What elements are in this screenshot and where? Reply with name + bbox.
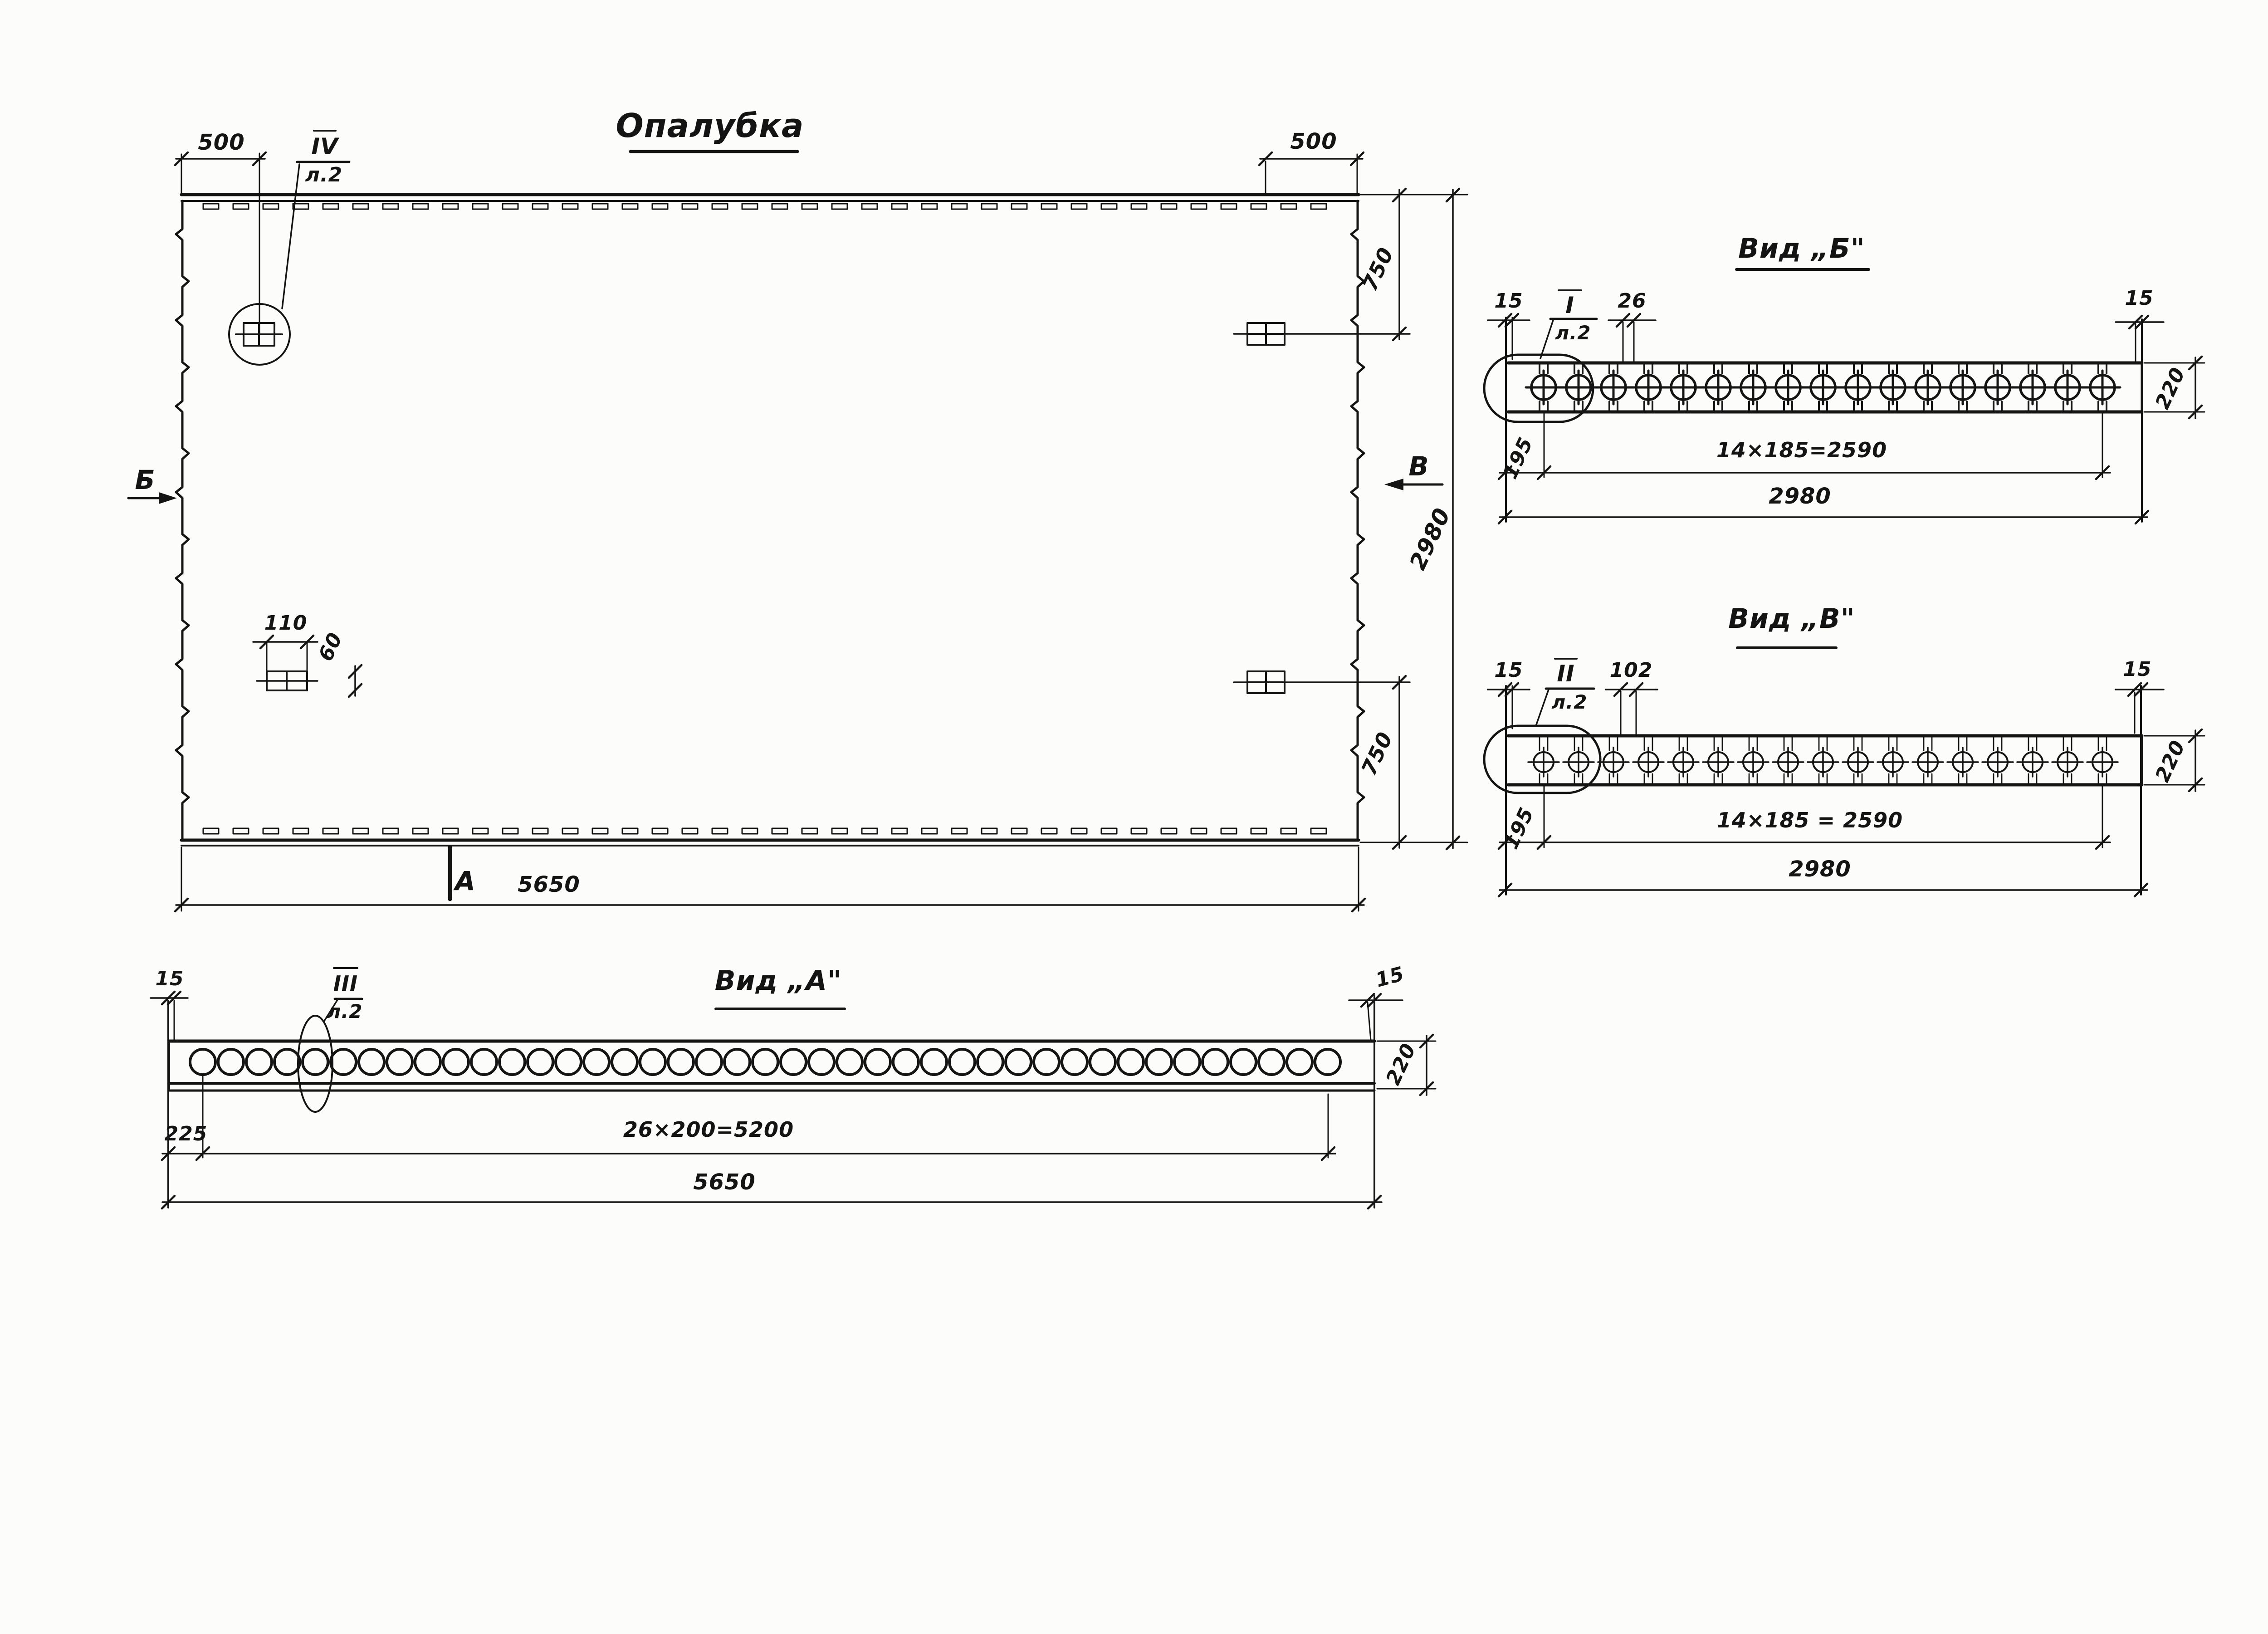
bolt-icon <box>1738 738 1769 783</box>
hole-icon <box>246 1049 272 1075</box>
rib-dash <box>1251 204 1266 209</box>
plan-bottom-rib-dashes <box>203 828 1326 834</box>
dim-label: 750 <box>1356 728 1398 779</box>
bolt-icon <box>1666 365 1701 410</box>
bolt-icon <box>1703 738 1734 783</box>
bolt-icon <box>1805 365 1841 410</box>
hole-icon <box>556 1049 581 1075</box>
rib-dash <box>533 204 548 209</box>
hole-icon <box>303 1049 328 1075</box>
hole-icon <box>1259 1049 1284 1075</box>
dim-label-pitch: 14×185=2590 <box>1716 438 1887 462</box>
rib-dash <box>772 204 787 209</box>
callout-leader <box>1540 320 1553 358</box>
bolt-icon <box>1875 365 1911 410</box>
rib-dash <box>802 828 817 834</box>
dim-label: 500 <box>198 130 244 155</box>
callout-sheet: л.2 <box>327 1000 363 1022</box>
view-a-dims-bottom: 225 26×200=5200 5650 <box>162 1076 1382 1208</box>
bolt-icon <box>1668 738 1699 783</box>
bolt-icon <box>1843 738 1873 783</box>
dim-label-height: 60 <box>314 629 347 665</box>
callout-sheet: л.2 <box>1552 691 1588 713</box>
view-b-strip <box>1484 355 2142 422</box>
rib-dash <box>952 828 967 834</box>
hole-icon <box>387 1049 412 1075</box>
view-v-dim-15-left: 15 <box>1488 659 1530 895</box>
plan-clamp-upper <box>1234 323 1410 345</box>
rib-dash <box>922 828 937 834</box>
hole-icon <box>753 1049 778 1075</box>
hole-icon <box>1006 1049 1031 1075</box>
rib-dash <box>1041 828 1057 834</box>
rib-dash <box>562 204 578 209</box>
rib-dash <box>982 828 997 834</box>
bolt-icon <box>1770 365 1806 410</box>
dim-label: 102 <box>1610 659 1653 682</box>
hole-icon <box>190 1049 215 1075</box>
callout-leader <box>282 164 299 308</box>
marker-arrow-icon <box>1384 479 1403 490</box>
bolt-icon <box>1526 365 1561 410</box>
rib-dash <box>473 828 488 834</box>
bolt-icon <box>1840 365 1876 410</box>
dim-label-overall: 5650 <box>693 1169 756 1195</box>
rib-dash <box>1191 828 1207 834</box>
hole-icon <box>218 1049 244 1075</box>
hole-icon <box>331 1049 356 1075</box>
bolt-icon <box>1735 365 1771 410</box>
dim-label: 15 <box>2125 287 2153 310</box>
rib-dash <box>802 204 817 209</box>
rib-dash <box>622 204 638 209</box>
rib-dash <box>1012 204 1027 209</box>
plan-right-zigzag-edge <box>1351 201 1364 840</box>
marker-label: В <box>1408 451 1429 482</box>
rib-dash <box>592 204 608 209</box>
rib-dash <box>922 204 937 209</box>
rib-dash <box>1101 828 1117 834</box>
dim-label-width: 110 <box>264 612 308 635</box>
rib-dash <box>293 828 308 834</box>
callout-sheet: л.2 <box>1555 322 1591 344</box>
section-marker-a-bottom: А <box>450 847 476 899</box>
rib-dash <box>233 828 249 834</box>
dim-label: 220 <box>2151 737 2190 786</box>
hole-icon <box>1315 1049 1340 1075</box>
view-b: Вид „Б" 15 I л.2 26 <box>1484 233 2204 523</box>
rib-dash <box>503 828 518 834</box>
view-v-dims-bottom: 195 14×185 = 2590 2980 <box>1499 786 2147 896</box>
hole-icon <box>471 1049 497 1075</box>
plan-outline <box>176 195 1364 846</box>
rib-dash <box>742 828 758 834</box>
rib-dash <box>1161 204 1177 209</box>
hole-icon <box>1118 1049 1144 1075</box>
bolt-icon <box>2015 365 2050 410</box>
view-a-title: Вид „А" <box>715 965 842 997</box>
bolt-icon <box>2017 738 2048 783</box>
rib-dash <box>383 204 398 209</box>
formwork-drawing-canvas: Опалубка 500 <box>0 0 2268 1634</box>
plan-detail-110x60: 110 60 <box>253 612 362 697</box>
plan-clamp-lower <box>1234 671 1410 693</box>
plan-top-rib-dashes <box>203 204 1326 209</box>
rib-dash <box>652 828 668 834</box>
marker-arrow-icon <box>159 492 177 504</box>
section-marker-v-right: В <box>1384 451 1442 490</box>
rib-dash <box>772 828 787 834</box>
hole-icon <box>528 1049 553 1075</box>
rib-dash <box>952 204 967 209</box>
hole-icon <box>640 1049 665 1075</box>
hole-icon <box>499 1049 525 1075</box>
stroke <box>1368 1003 1371 1040</box>
view-a-callout-iii: III л.2 <box>324 968 362 1022</box>
rib-dash <box>323 828 338 834</box>
plan-view: Опалубка 500 <box>128 107 1467 911</box>
callout-leader <box>1536 690 1549 726</box>
rib-dash <box>323 204 338 209</box>
bolt-icon <box>1980 365 2015 410</box>
rib-dash <box>682 828 698 834</box>
rib-dash <box>203 828 219 834</box>
bolt-icon <box>1945 365 1980 410</box>
bolt-icon <box>1912 738 1943 783</box>
bolt-icon <box>1633 738 1664 783</box>
rib-dash <box>203 204 219 209</box>
rib-dash <box>383 828 398 834</box>
rib-dash <box>353 204 368 209</box>
rib-dash <box>1071 828 1087 834</box>
rib-dash <box>413 204 428 209</box>
plan-dim-750-lower: 750 <box>1356 676 1406 849</box>
view-b-title: Вид „Б" <box>1738 233 1865 264</box>
hole-icon <box>1174 1049 1200 1075</box>
plan-dim-500-right: 500 <box>1259 129 1364 195</box>
rib-dash <box>622 828 638 834</box>
view-v-strip <box>1484 726 2142 793</box>
rib-dash <box>353 828 368 834</box>
dim-label: 26 <box>1618 289 1646 313</box>
view-b-bolts <box>1526 365 2120 410</box>
view-b-dims-bottom: 195 14×185=2590 2980 <box>1499 414 2148 523</box>
rib-dash <box>832 204 847 209</box>
rib-dash <box>1131 204 1147 209</box>
dim-label: 15 <box>1494 289 1523 313</box>
rib-dash <box>652 204 668 209</box>
view-v-bolts <box>1528 738 2118 783</box>
rib-dash <box>862 828 877 834</box>
rib-dash <box>503 204 518 209</box>
hole-icon <box>696 1049 722 1075</box>
rib-dash <box>562 828 578 834</box>
marker-label: Б <box>135 465 155 495</box>
section-marker-b-left: Б <box>128 465 177 504</box>
view-b-dim-220: 220 <box>2145 357 2204 418</box>
plan-dim-500-left: 500 <box>175 130 266 334</box>
dim-label: 750 <box>1357 244 1398 295</box>
dim-label: 15 <box>2123 658 2151 681</box>
hole-icon <box>1062 1049 1087 1075</box>
drawing-sheet: Опалубка 500 <box>0 0 2268 1634</box>
hole-icon <box>274 1049 300 1075</box>
hole-icon <box>612 1049 637 1075</box>
view-a-dim-220: 220 <box>1377 1035 1436 1095</box>
dim-label: 220 <box>1382 1040 1421 1089</box>
rib-dash <box>1311 828 1326 834</box>
view-b-callout-i: I л.2 <box>1540 290 1597 358</box>
dim-label-first: 225 <box>165 1122 208 1145</box>
rib-dash <box>1012 828 1027 834</box>
rib-dash <box>473 204 488 209</box>
hole-icon <box>584 1049 609 1075</box>
dim-label-pitch: 14×185 = 2590 <box>1717 808 1903 832</box>
rib-dash <box>1221 204 1237 209</box>
view-v-callout-ii: II л.2 <box>1536 659 1594 726</box>
clamp-detail-icon <box>236 323 282 346</box>
bolt-icon <box>1561 365 1596 410</box>
view-b-dim-26: 26 <box>1608 289 1656 362</box>
hole-icon <box>1146 1049 1172 1075</box>
view-a-dim-15-left: 15 <box>151 967 188 1208</box>
hole-icon <box>781 1049 806 1075</box>
bolt-icon <box>1808 738 1838 783</box>
dim-label: 500 <box>1290 129 1337 154</box>
hole-icon <box>921 1049 947 1075</box>
drawing-title: Опалубка <box>616 107 804 145</box>
bolt-icon <box>1701 365 1736 410</box>
hole-icon <box>865 1049 890 1075</box>
rib-dash <box>1071 204 1087 209</box>
bolt-icon <box>1631 365 1666 410</box>
hole-icon <box>1231 1049 1256 1075</box>
rib-dash <box>1041 204 1057 209</box>
hole-icon <box>893 1049 919 1075</box>
view-b-dim-15-left: 15 <box>1488 289 1530 522</box>
plan-dim-750-upper: 750 <box>1357 189 1406 340</box>
rib-dash <box>1221 828 1237 834</box>
bolt-icon <box>1910 365 1945 410</box>
rib-dash <box>592 828 608 834</box>
callout-label: III <box>333 971 358 996</box>
marker-label: А <box>453 866 476 896</box>
bolt-icon <box>2050 365 2085 410</box>
plan-callout-iv: IV л.2 <box>229 131 349 365</box>
callout-sheet: л.2 <box>305 163 343 186</box>
view-v: Вид „В" 15 II л.2 10 <box>1484 603 2204 896</box>
rib-dash <box>1161 828 1177 834</box>
view-a-holes <box>190 1049 1340 1075</box>
callout-label: I <box>1565 292 1574 318</box>
dim-label: 5650 <box>518 872 580 897</box>
view-a: Вид „А" III л.2 15 <box>151 962 1436 1208</box>
view-v-dim-220: 220 <box>2145 729 2204 791</box>
hole-icon <box>359 1049 384 1075</box>
rib-dash <box>1281 828 1296 834</box>
rib-dash <box>1311 204 1326 209</box>
rib-dash <box>832 828 847 834</box>
rib-dash <box>233 204 249 209</box>
hole-icon <box>724 1049 750 1075</box>
bolt-icon <box>1947 738 1978 783</box>
hole-icon <box>1090 1049 1115 1075</box>
hole-icon <box>978 1049 1003 1075</box>
dim-label: 15 <box>1494 659 1523 682</box>
bolt-icon <box>1773 738 1804 783</box>
rib-dash <box>682 204 698 209</box>
bolt-icon <box>2052 738 2083 783</box>
bolt-icon <box>1528 738 1559 783</box>
bolt-icon <box>2085 365 2120 410</box>
rib-dash <box>1281 204 1296 209</box>
hole-icon <box>443 1049 469 1075</box>
view-a-strip <box>169 1016 1374 1112</box>
plan-dim-5650-overall: 5650 <box>175 847 1365 911</box>
rib-dash <box>263 828 279 834</box>
dim-label-overall: 2980 <box>1769 484 1831 509</box>
dim-label: 15 <box>155 967 184 990</box>
bolt-icon <box>2087 738 2118 783</box>
hole-icon <box>949 1049 975 1075</box>
rib-dash <box>263 204 279 209</box>
rib-dash <box>742 204 758 209</box>
dim-label-first: 195 <box>1499 434 1538 483</box>
rib-dash <box>413 828 428 834</box>
hole-icon <box>837 1049 862 1075</box>
view-v-title: Вид „В" <box>1728 603 1855 635</box>
rib-dash <box>443 828 458 834</box>
rib-dash <box>892 204 907 209</box>
bolt-icon <box>1596 365 1631 410</box>
rib-dash <box>712 828 728 834</box>
rib-dash <box>1191 204 1207 209</box>
rib-dash <box>1131 828 1147 834</box>
dim-label-overall: 2980 <box>1789 856 1851 882</box>
rib-dash <box>443 204 458 209</box>
hole-icon <box>1287 1049 1312 1075</box>
dim-label: 15 <box>1373 962 1407 992</box>
dim-label: 220 <box>2151 364 2190 413</box>
rib-dash <box>892 828 907 834</box>
bolt-icon <box>1563 738 1594 783</box>
bolt-icon <box>1877 738 1908 783</box>
plan-left-zigzag-edge <box>176 201 189 840</box>
hole-icon <box>809 1049 834 1075</box>
bolt-icon <box>1598 738 1629 783</box>
hole-icon <box>1202 1049 1228 1075</box>
rib-dash <box>712 204 728 209</box>
rib-dash <box>533 828 548 834</box>
dim-label-pitch: 26×200=5200 <box>623 1117 794 1142</box>
callout-label: IV <box>311 133 339 160</box>
rib-dash <box>1251 828 1266 834</box>
dim-label: 2980 <box>1404 504 1456 574</box>
rib-dash <box>862 204 877 209</box>
rib-dash <box>1101 204 1117 209</box>
bolt-icon <box>1982 738 2013 783</box>
rib-dash <box>982 204 997 209</box>
hole-icon <box>668 1049 694 1075</box>
view-v-dim-102: 102 <box>1606 659 1657 734</box>
hole-icon <box>415 1049 440 1075</box>
hole-icon <box>1034 1049 1059 1075</box>
callout-label: II <box>1557 660 1574 687</box>
